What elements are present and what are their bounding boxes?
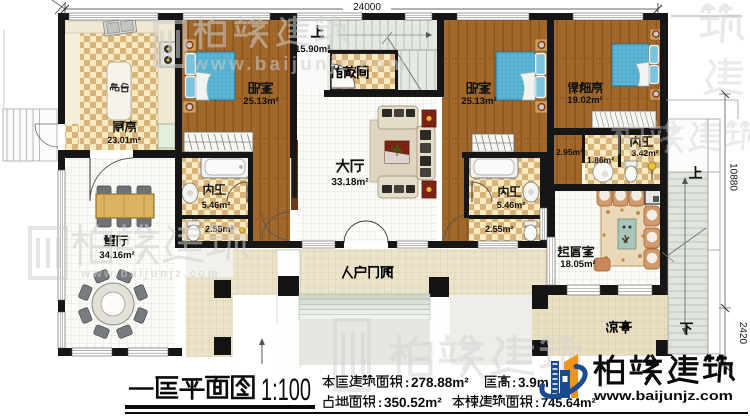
svg-text:33.18m²: 33.18m²	[331, 177, 369, 188]
svg-text::: :	[535, 395, 539, 410]
svg-text:5.46m²: 5.46m²	[202, 200, 231, 210]
svg-text:24000: 24000	[353, 2, 381, 13]
svg-text:2.55m²: 2.55m²	[485, 224, 514, 234]
svg-text:350.52m²: 350.52m²	[384, 395, 442, 410]
svg-text:34.16m²: 34.16m²	[99, 250, 134, 261]
svg-text:2420: 2420	[737, 322, 748, 345]
svg-text::: :	[405, 375, 409, 390]
svg-text:25.13m²: 25.13m²	[461, 96, 496, 107]
svg-text:278.88m²: 278.88m²	[411, 375, 469, 390]
svg-text:www.baijunjz.com: www.baijunjz.com	[192, 54, 408, 75]
svg-text:www.baijunjz.com: www.baijunjz.com	[80, 268, 220, 280]
svg-text:10880: 10880	[728, 163, 739, 191]
svg-text:1.86m²: 1.86m²	[587, 155, 614, 165]
svg-text::: :	[512, 375, 516, 390]
svg-text:23.01m²: 23.01m²	[107, 135, 141, 145]
svg-text:1:100: 1:100	[261, 372, 311, 407]
svg-text:25.13m²: 25.13m²	[243, 96, 278, 107]
svg-text:5.46m²: 5.46m²	[497, 200, 526, 210]
svg-text:www.baijunjz.com: www.baijunjz.com	[593, 388, 733, 403]
svg-text::: :	[378, 395, 382, 410]
svg-text:2.95m²: 2.95m²	[556, 147, 583, 157]
svg-text:18.05m²: 18.05m²	[560, 259, 595, 270]
svg-text:19.02m²: 19.02m²	[567, 95, 602, 106]
